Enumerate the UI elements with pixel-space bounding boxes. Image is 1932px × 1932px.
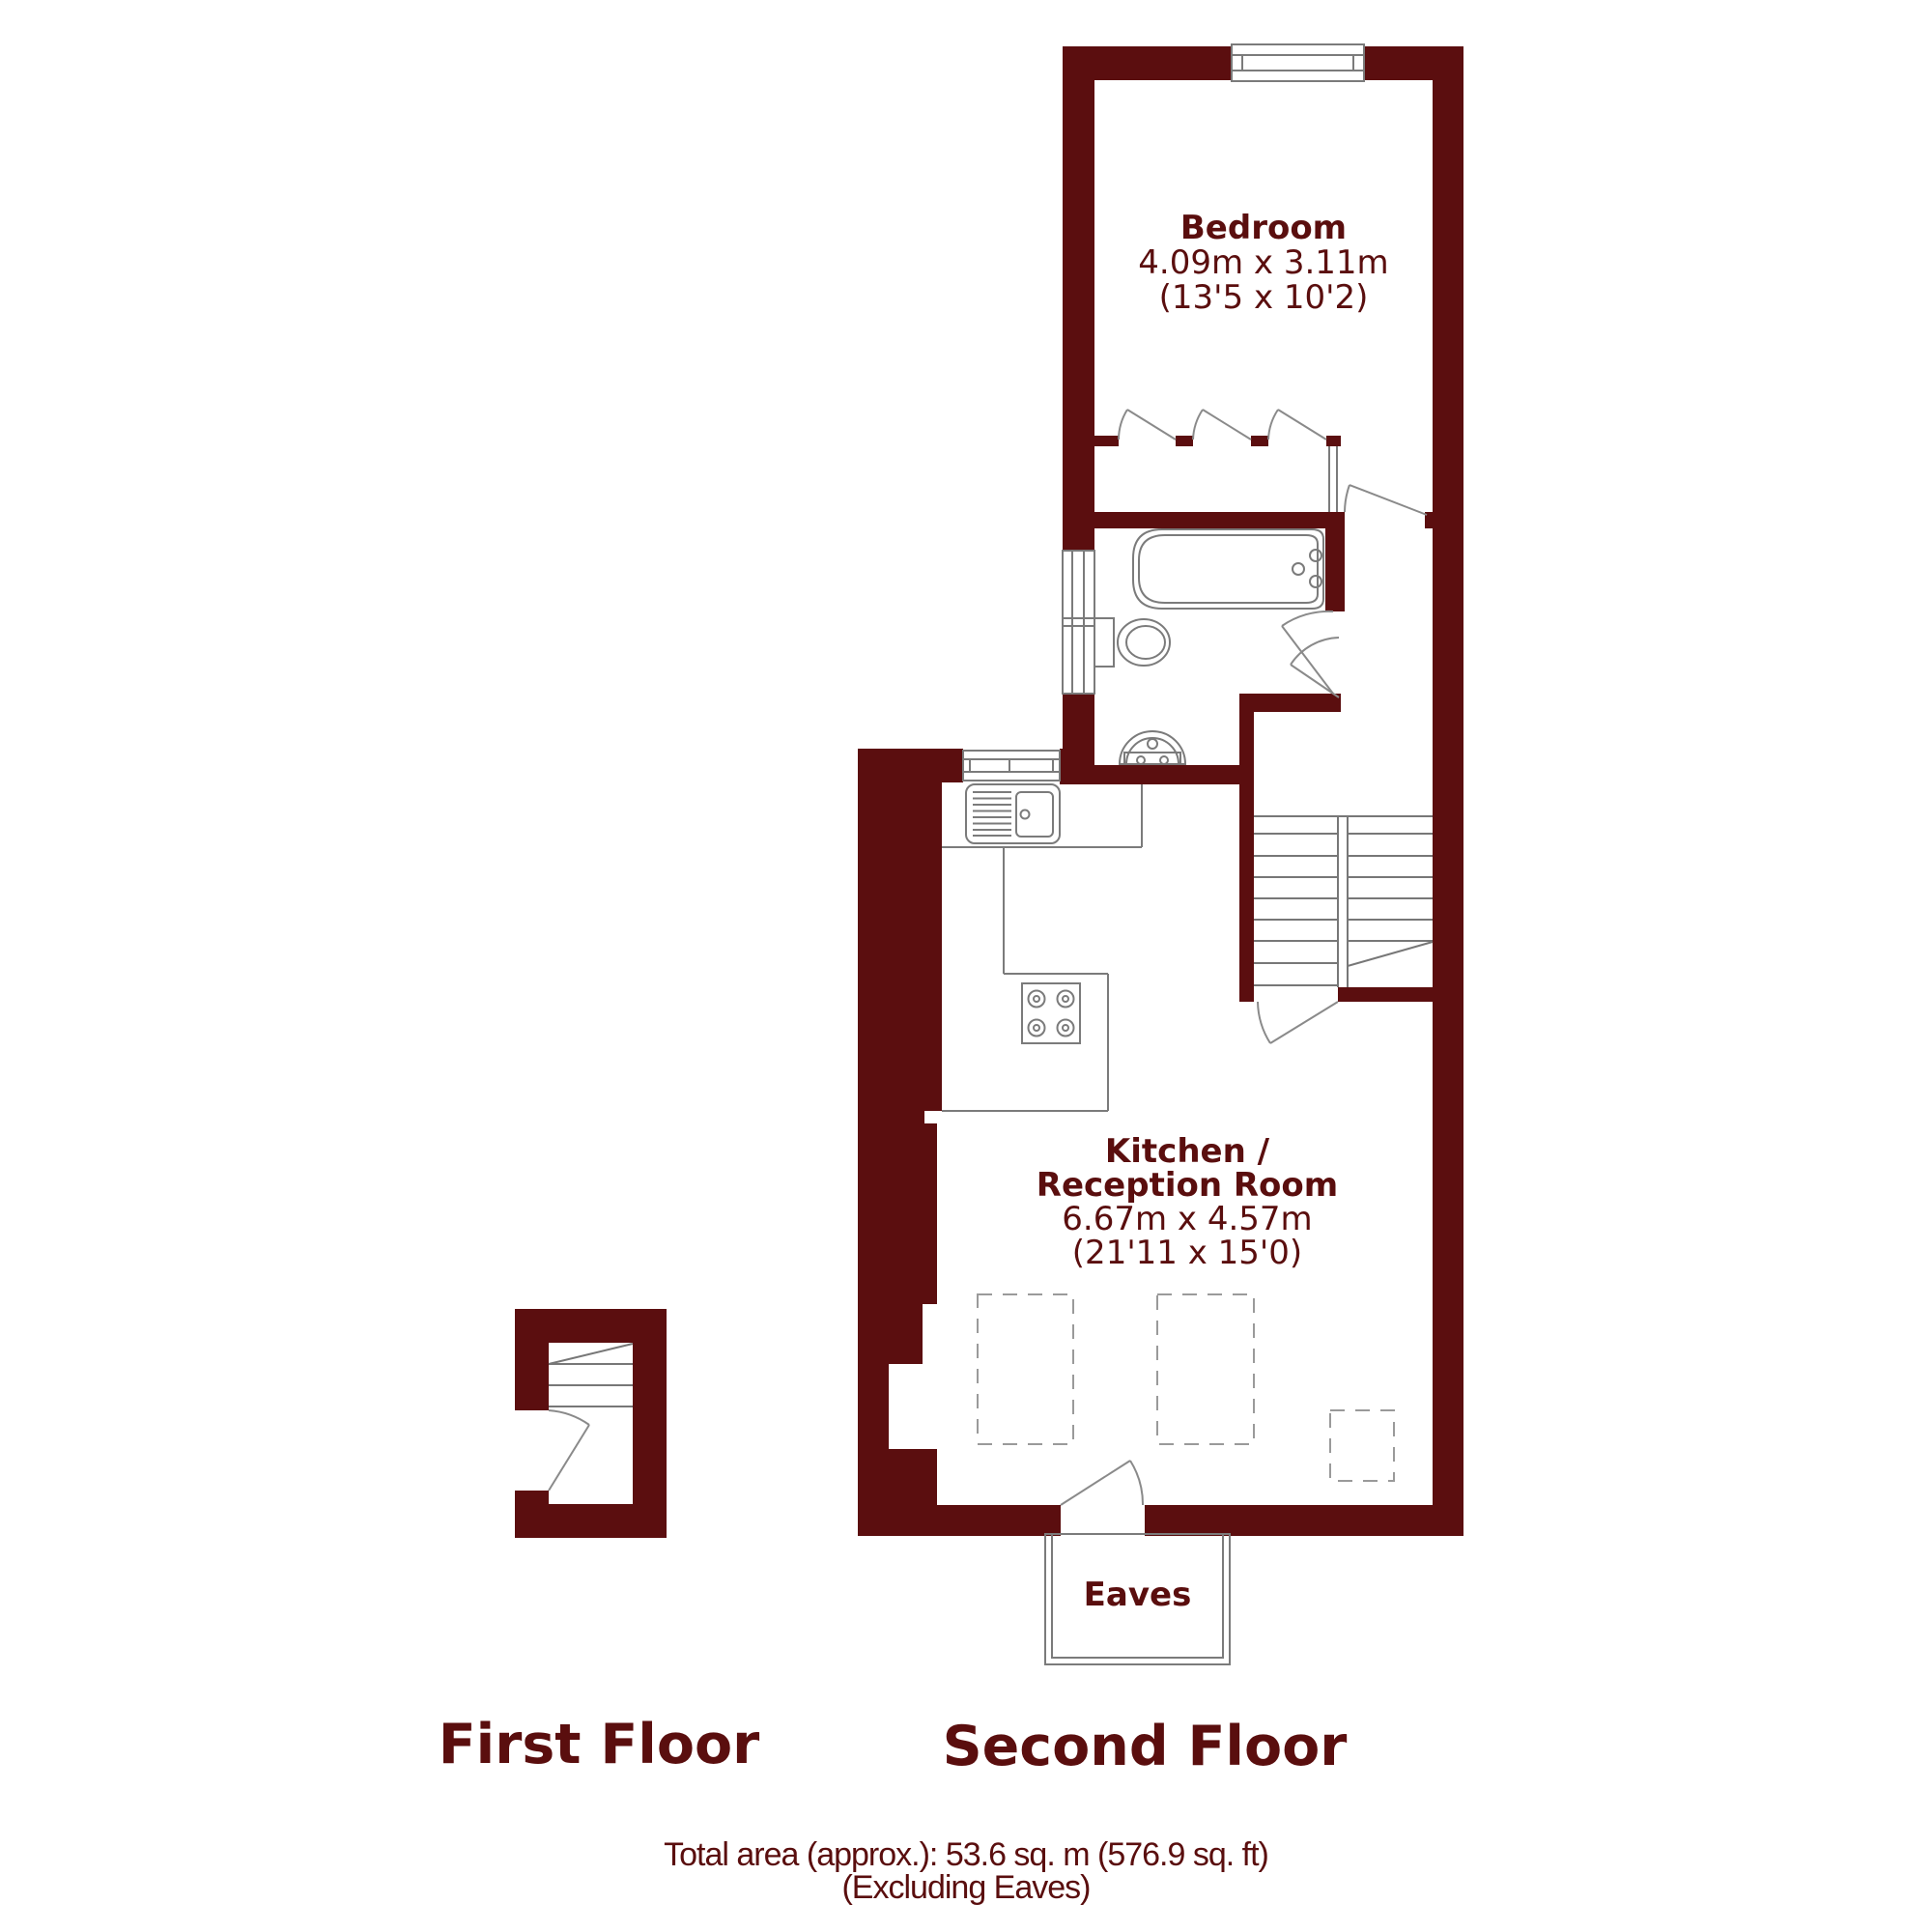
eaves-label: Eaves [1045,1577,1230,1612]
kitchen-label: Kitchen / Reception Room 6.67m x 4.57m (… [942,1135,1433,1270]
bathroom-door [1282,611,1333,694]
kitchen-name-line2: Reception Room [942,1169,1433,1203]
kitchen-dim-metric: 6.67m x 4.57m [942,1203,1433,1236]
kitchen-dim-imperial: (21'11 x 15'0) [942,1236,1433,1270]
first-floor-stairs [549,1344,633,1406]
toilet-icon [1094,618,1170,667]
eaves-door [1061,1461,1143,1505]
bedroom-name: Bedroom [1094,211,1433,245]
total-area-text: Total area (approx.): 53.6 sq. m (576.9 … [483,1838,1449,1871]
bathroom-window [1063,551,1094,694]
kitchen-name-line1: Kitchen / [942,1135,1433,1169]
bathtub-icon [1133,529,1323,609]
basin-icon [1120,731,1185,764]
first-floor-walls [515,1309,667,1538]
furniture-outlines [978,1294,1394,1481]
second-floor-title: Second Floor [903,1718,1386,1776]
first-floor-door [549,1410,589,1491]
bedroom-door [1345,485,1427,515]
floorplan-canvas: Bedroom 4.09m x 3.11m (13'5 x 10'2) Kitc… [0,0,1932,1932]
bedroom-window [1232,44,1364,81]
bedroom-dim-metric: 4.09m x 3.11m [1094,245,1433,280]
bedroom-label: Bedroom 4.09m x 3.11m (13'5 x 10'2) [1094,211,1433,315]
kitchen-sink-icon [966,784,1060,843]
total-area-note: Total area (approx.): 53.6 sq. m (576.9 … [483,1838,1449,1904]
hob-icon [1022,983,1080,1043]
stairs-bottom-door [1258,1002,1338,1043]
closet-doors [1119,410,1337,512]
kitchen-window [963,751,1060,781]
second-floor-stairs [1254,816,1433,987]
floorplan-drawing [0,0,1932,1932]
bedroom-dim-imperial: (13'5 x 10'2) [1094,280,1433,315]
excluding-eaves-text: (Excluding Eaves) [483,1871,1449,1904]
first-floor-title: First Floor [406,1716,792,1774]
